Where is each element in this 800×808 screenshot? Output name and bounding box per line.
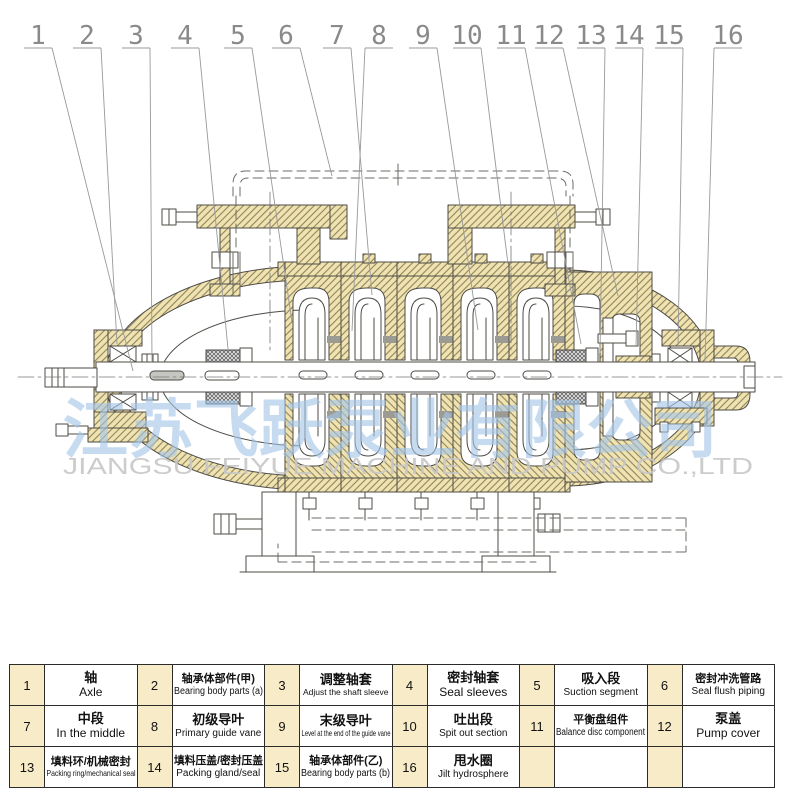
callout-number-12: 12 <box>533 21 564 51</box>
part-name-cn: 平衡盘组件 <box>573 714 628 727</box>
part-name-en: Bearing body parts (a) <box>174 686 263 697</box>
part-name-en: Spit out section <box>439 728 507 739</box>
leader-line-1 <box>52 48 133 371</box>
callout-number-7: 7 <box>329 21 345 51</box>
part-number-cell: 11 <box>520 706 555 747</box>
part-desc-cell: 轴承体部件(乙)Bearing body parts (b) <box>300 747 393 788</box>
callout-number-8: 8 <box>371 21 387 51</box>
part-name-cn: 轴 <box>84 671 97 686</box>
callout-number-15: 15 <box>653 21 684 51</box>
part-name-en: Packing ring/mechanical seal <box>46 769 135 778</box>
part-desc-cell: 末级导叶Level at the end of the guide vane <box>300 706 393 747</box>
table-row: 1轴Axle2轴承体部件(甲)Bearing body parts (a)3调整… <box>10 665 775 706</box>
callout-number-1: 1 <box>30 21 46 51</box>
callout-number-16: 16 <box>712 21 743 51</box>
part-name-cn: 吸入段 <box>581 672 620 687</box>
part-number-cell: 3 <box>265 665 300 706</box>
leader-line-2 <box>101 48 117 344</box>
leader-line-16 <box>705 48 714 361</box>
part-name-en: Primary guide vane <box>175 728 261 739</box>
part-name-cn: 中段 <box>78 712 104 727</box>
part-number-cell: 13 <box>10 747 45 788</box>
part-desc-cell: 甩水圈Jilt hydrosphere <box>427 747 520 788</box>
part-name-en: In the middle <box>56 727 125 740</box>
part-name-cn: 初级导叶 <box>192 713 244 728</box>
table-row: 13填料环/机械密封Packing ring/mechanical seal14… <box>10 747 775 788</box>
part-name-en: Bearing body parts (b) <box>301 768 390 779</box>
pump-cross-section-diagram: 12345678910111213141516 江苏飞跃泵业有限公司 JIANG… <box>0 0 800 660</box>
part-number-cell: 7 <box>10 706 45 747</box>
part-number-cell: 1 <box>10 665 45 706</box>
callout-number-14: 14 <box>613 21 644 51</box>
part-number-cell: 5 <box>520 665 555 706</box>
part-name-cn: 轴承体部件(甲) <box>182 673 255 686</box>
leader-line-15 <box>678 48 683 346</box>
part-desc-cell: 初级导叶Primary guide vane <box>172 706 265 747</box>
callout-number-2: 2 <box>79 21 95 51</box>
callout-layer: 12345678910111213141516 <box>24 21 744 371</box>
callout-number-6: 6 <box>278 21 294 51</box>
part-number-cell: 14 <box>137 747 172 788</box>
leader-line-4 <box>199 48 228 349</box>
part-name-en: Axle <box>79 686 102 699</box>
part-name-cn: 末级导叶 <box>320 714 372 729</box>
part-name-cn: 填料压盖/密封压盖 <box>174 755 263 768</box>
part-desc-cell: 填料压盖/密封压盖Packing gland/seal <box>172 747 265 788</box>
part-number-cell <box>520 747 555 788</box>
part-name-cn: 泵盖 <box>715 712 741 727</box>
callout-number-13: 13 <box>575 21 606 51</box>
part-number-cell: 16 <box>392 747 427 788</box>
part-desc-cell: 调整轴套Adjust the shaft sleeve <box>300 665 393 706</box>
table-row: 7中段In the middle8初级导叶Primary guide vane9… <box>10 706 775 747</box>
callout-number-3: 3 <box>128 21 144 51</box>
part-name-en: Packing gland/seal <box>176 768 260 779</box>
callout-number-5: 5 <box>230 21 246 51</box>
part-number-cell: 9 <box>265 706 300 747</box>
part-desc-cell: 中段In the middle <box>45 706 138 747</box>
pump-datasheet-page: 12345678910111213141516 江苏飞跃泵业有限公司 JIANG… <box>0 0 800 808</box>
part-name-en: Level at the end of the guide vane <box>301 729 390 738</box>
watermark: 江苏飞跃泵业有限公司 JIANGSU FEIYUE MACHINE AND PU… <box>63 394 754 479</box>
part-desc-cell: 轴Axle <box>45 665 138 706</box>
part-number-cell: 4 <box>392 665 427 706</box>
part-desc-cell: 轴承体部件(甲)Bearing body parts (a) <box>172 665 265 706</box>
part-name-en: Adjust the shaft sleeve <box>303 688 389 697</box>
part-desc-cell: 吸入段Suction segment <box>555 665 648 706</box>
part-name-en: Seal flush piping <box>692 686 765 697</box>
part-desc-cell: 泵盖Pump cover <box>682 706 775 747</box>
part-name-cn: 甩水圈 <box>454 754 493 769</box>
part-desc-cell <box>682 747 775 788</box>
callout-number-4: 4 <box>177 21 193 51</box>
callout-number-11: 11 <box>495 21 526 51</box>
part-number-cell: 12 <box>647 706 682 747</box>
part-number-cell <box>647 747 682 788</box>
part-name-cn: 轴承体部件(乙) <box>309 755 382 768</box>
part-name-en: Seal sleeves <box>439 686 507 699</box>
part-name-en: Balance disc component <box>556 727 645 738</box>
parts-table: 1轴Axle2轴承体部件(甲)Bearing body parts (a)3调整… <box>9 664 775 788</box>
callout-number-9: 9 <box>415 21 431 51</box>
part-number-cell: 10 <box>392 706 427 747</box>
part-name-cn: 密封冲洗管路 <box>695 673 761 686</box>
callout-number-10: 10 <box>451 21 482 51</box>
leader-line-6 <box>300 48 332 176</box>
part-number-cell: 15 <box>265 747 300 788</box>
part-name-cn: 密封轴套 <box>447 671 499 686</box>
part-name-en: Jilt hydrosphere <box>438 769 509 780</box>
part-desc-cell: 填料环/机械密封Packing ring/mechanical seal <box>45 747 138 788</box>
watermark-en: JIANGSU FEIYUE MACHINE AND PUMP CO.,LTD <box>63 453 753 479</box>
part-desc-cell: 密封轴套Seal sleeves <box>427 665 520 706</box>
part-desc-cell: 平衡盘组件Balance disc component <box>555 706 648 747</box>
part-desc-cell: 密封冲洗管路Seal flush piping <box>682 665 775 706</box>
part-number-cell: 8 <box>137 706 172 747</box>
part-name-cn: 调整轴套 <box>320 673 372 688</box>
leader-line-10 <box>481 48 508 264</box>
base-support <box>214 492 686 572</box>
part-desc-cell: 吐出段Spit out section <box>427 706 520 747</box>
part-name-en: Pump cover <box>696 727 760 740</box>
part-desc-cell <box>555 747 648 788</box>
part-number-cell: 2 <box>137 665 172 706</box>
part-number-cell: 6 <box>647 665 682 706</box>
part-name-en: Suction segment <box>564 687 639 698</box>
part-name-cn: 吐出段 <box>454 713 493 728</box>
